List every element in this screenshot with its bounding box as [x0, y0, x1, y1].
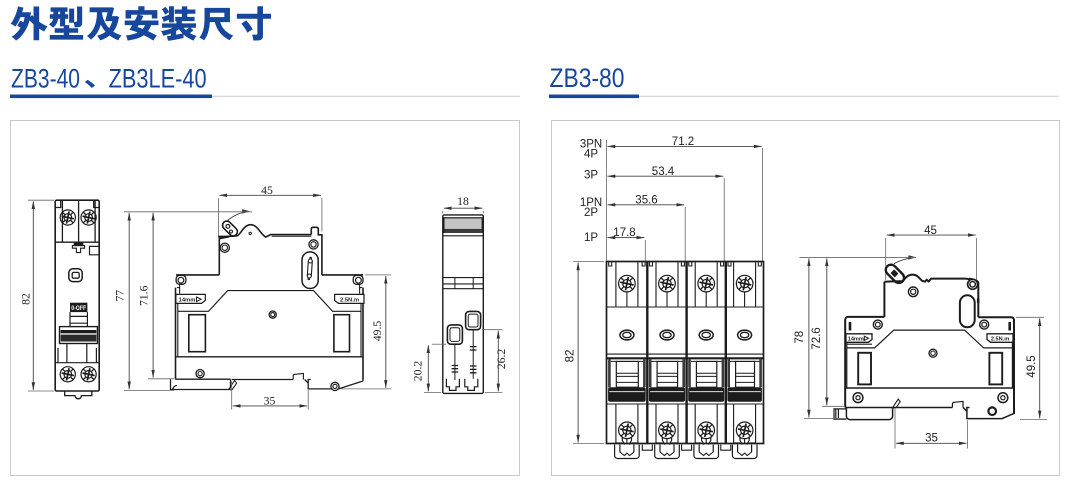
svg-text:14mm: 14mm	[179, 297, 196, 303]
svg-text:71.2: 71.2	[672, 136, 694, 148]
svg-text:53.4: 53.4	[652, 166, 675, 178]
svg-text:2.5N.m: 2.5N.m	[991, 336, 1009, 342]
svg-text:2P: 2P	[584, 207, 598, 219]
svg-text:18: 18	[457, 195, 469, 208]
svg-text:14mm: 14mm	[848, 336, 864, 342]
svg-text:20.2: 20.2	[412, 361, 425, 382]
svg-text:17.8: 17.8	[613, 227, 635, 239]
svg-text:49.5: 49.5	[1026, 355, 1038, 377]
svg-text:45: 45	[924, 225, 937, 237]
svg-text:45: 45	[261, 184, 273, 197]
svg-text:ZB3-80: ZB3-80	[550, 63, 625, 93]
svg-text:77: 77	[114, 290, 127, 302]
svg-text:72.6: 72.6	[811, 327, 823, 349]
svg-text:35: 35	[925, 433, 938, 445]
svg-text:4P: 4P	[584, 149, 598, 161]
svg-text:78: 78	[794, 331, 806, 344]
svg-text:82: 82	[565, 350, 577, 363]
svg-text:2.5N.m: 2.5N.m	[340, 297, 359, 303]
svg-text:1P: 1P	[584, 232, 598, 244]
svg-text:3P: 3P	[584, 170, 598, 182]
svg-text:ZB3-40: ZB3-40	[11, 64, 80, 94]
svg-text:49.5: 49.5	[371, 321, 384, 342]
svg-text:71.6: 71.6	[137, 285, 150, 306]
svg-text:ZB3LE-40: ZB3LE-40	[109, 64, 207, 94]
svg-text:82: 82	[20, 293, 33, 305]
svg-text:35.6: 35.6	[635, 194, 657, 206]
svg-text:26.2: 26.2	[495, 349, 508, 370]
svg-text:35: 35	[264, 394, 276, 407]
svg-text:0-OFF: 0-OFF	[71, 306, 86, 312]
